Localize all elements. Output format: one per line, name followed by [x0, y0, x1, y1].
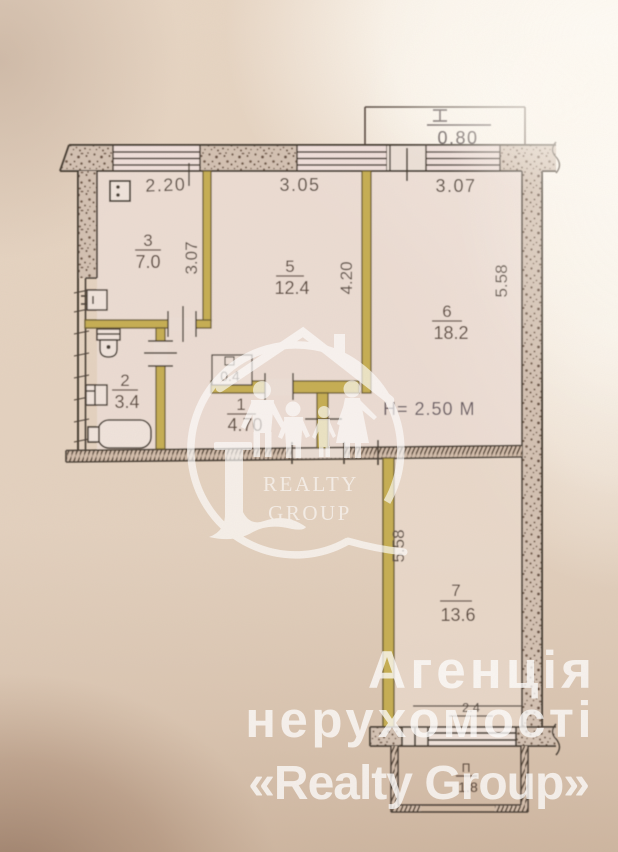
svg-text:2: 2: [120, 371, 129, 390]
svg-text:«Realty Group»: «Realty Group»: [248, 757, 589, 810]
svg-text:6: 6: [442, 302, 451, 321]
svg-text:12.4: 12.4: [274, 278, 309, 298]
svg-text:нерухомості: нерухомості: [245, 691, 595, 748]
svg-text:GROUP: GROUP: [268, 501, 352, 525]
svg-text:3.07: 3.07: [182, 241, 201, 274]
svg-text:2.20: 2.20: [145, 174, 187, 195]
svg-text:3.05: 3.05: [279, 175, 320, 195]
svg-text:5: 5: [285, 257, 294, 276]
svg-text:13.6: 13.6: [440, 605, 475, 625]
svg-text:4.20: 4.20: [337, 261, 356, 294]
svg-text:3: 3: [143, 231, 152, 250]
svg-text:3.4: 3.4: [114, 392, 139, 412]
svg-text:REALTY: REALTY: [263, 472, 359, 496]
svg-text:5.58: 5.58: [389, 529, 408, 562]
svg-text:7: 7: [451, 581, 460, 600]
svg-text:1: 1: [236, 395, 245, 414]
svg-text:7.0: 7.0: [135, 252, 160, 272]
svg-text:18.2: 18.2: [433, 323, 468, 343]
